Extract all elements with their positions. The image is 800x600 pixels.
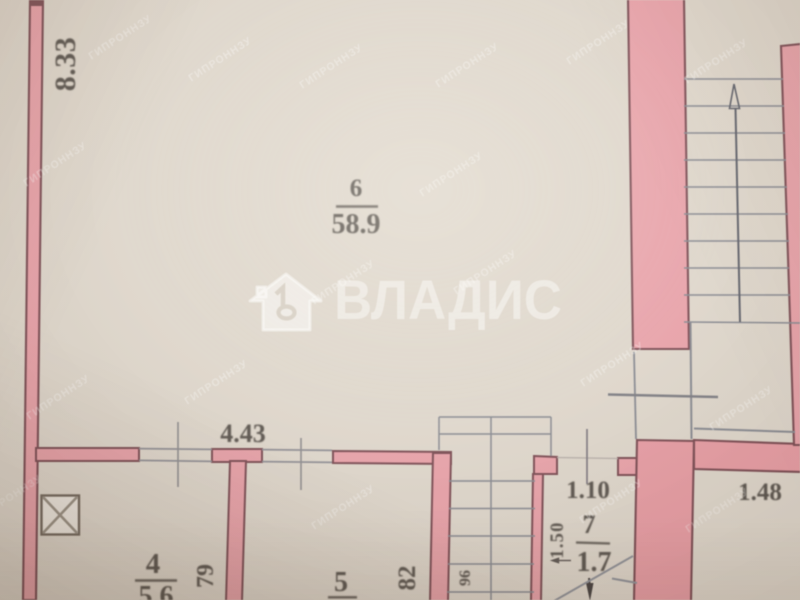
svg-text:1.50: 1.50	[548, 521, 568, 558]
svg-text:ГИПРОННЗУ: ГИПРОННЗУ	[417, 150, 485, 200]
svg-text:ГИПРОННЗУ: ГИПРОННЗУ	[182, 358, 250, 408]
svg-text:ГИПРОННЗУ: ГИПРОННЗУ	[309, 483, 377, 533]
svg-text:5: 5	[334, 567, 348, 598]
svg-text:6: 6	[350, 175, 363, 202]
svg-text:5.6: 5.6	[139, 581, 174, 600]
svg-text:ВЛАДИС: ВЛАДИС	[334, 268, 562, 331]
svg-text:4.43: 4.43	[220, 419, 266, 448]
svg-text:ГИПРОННЗУ: ГИПРОННЗУ	[433, 41, 501, 91]
svg-text:79: 79	[193, 564, 219, 588]
svg-text:82: 82	[394, 566, 421, 591]
svg-text:1.7: 1.7	[577, 547, 612, 578]
svg-text:ГИПРОННЗУ: ГИПРОННЗУ	[564, 18, 632, 68]
svg-text:58.9: 58.9	[332, 209, 381, 240]
svg-text:96: 96	[457, 570, 474, 586]
svg-text:ГИПРОННЗУ: ГИПРОННЗУ	[297, 42, 365, 92]
svg-text:ГИПРОННЗУ: ГИПРОННЗУ	[578, 340, 646, 390]
svg-text:ГИПРОННЗУ: ГИПРОННЗУ	[86, 13, 154, 63]
svg-text:ГИПРОННЗУ: ГИПРОННЗУ	[707, 384, 775, 434]
svg-text:4: 4	[146, 548, 161, 580]
svg-text:8.33: 8.33	[49, 37, 82, 92]
svg-text:ГИПРОННЗУ: ГИПРОННЗУ	[186, 35, 254, 85]
